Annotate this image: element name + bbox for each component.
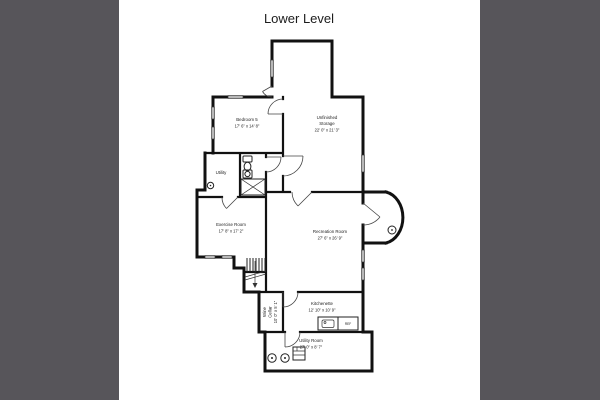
shower-icon (241, 179, 265, 195)
toilet-icon (243, 156, 252, 171)
page-title: Lower Level (264, 11, 334, 26)
utility-room-dims: 27' 0" x 8' 7" (300, 345, 323, 350)
bedroom5-label: Bedroom 5 (236, 117, 258, 122)
bedroom5-dims: 17' 6" x 14' 8" (235, 124, 260, 129)
refrigerator-icon: REF (345, 322, 351, 326)
washer-icon (268, 354, 276, 362)
kitchenette-label: Kitchenette (311, 301, 334, 306)
sink-icon (243, 170, 252, 178)
kitchen-counter: REF (318, 317, 358, 330)
utility-room-label: Utility Room (299, 338, 323, 343)
exercise-label: Exercise Room (216, 222, 246, 227)
wine-cellar-label-group: Wine Cellar 10' 0" x 5' 1" (262, 300, 278, 323)
kitchen-sink-icon (322, 320, 334, 328)
floor-drain-icon (207, 182, 213, 188)
utility-label: Utility (216, 170, 228, 175)
recreation-dims: 27' 6" x 26' 9" (318, 236, 343, 241)
storage-label-1: Unfinished (317, 115, 338, 120)
left-side-panel (0, 0, 119, 400)
wine-cellar-label-2: Cellar (268, 306, 273, 318)
right-side-panel (480, 0, 600, 400)
storage-dims: 22' 0" x 21' 3" (315, 128, 340, 133)
kitchenette-dims: 12' 10" x 10' 9" (308, 308, 336, 313)
exterior-walls (197, 41, 403, 371)
floor-plan-page: Lower Level (0, 0, 600, 400)
wine-cellar-dims: 10' 0" x 5' 1" (273, 300, 278, 323)
dryer-icon (281, 354, 289, 362)
exercise-dims: 17' 8" x 17' 2" (219, 229, 244, 234)
recreation-label: Recreation Room (313, 229, 348, 234)
bay-toilet-icon (388, 226, 396, 234)
room-labels: Bedroom 5 17' 6" x 14' 8" Unfinished Sto… (216, 115, 348, 350)
window-icons (205, 60, 364, 280)
storage-label-2: Storage (319, 121, 335, 126)
wine-cellar-label-1: Wine (262, 306, 267, 317)
floor-plan: Lower Level (0, 0, 600, 400)
